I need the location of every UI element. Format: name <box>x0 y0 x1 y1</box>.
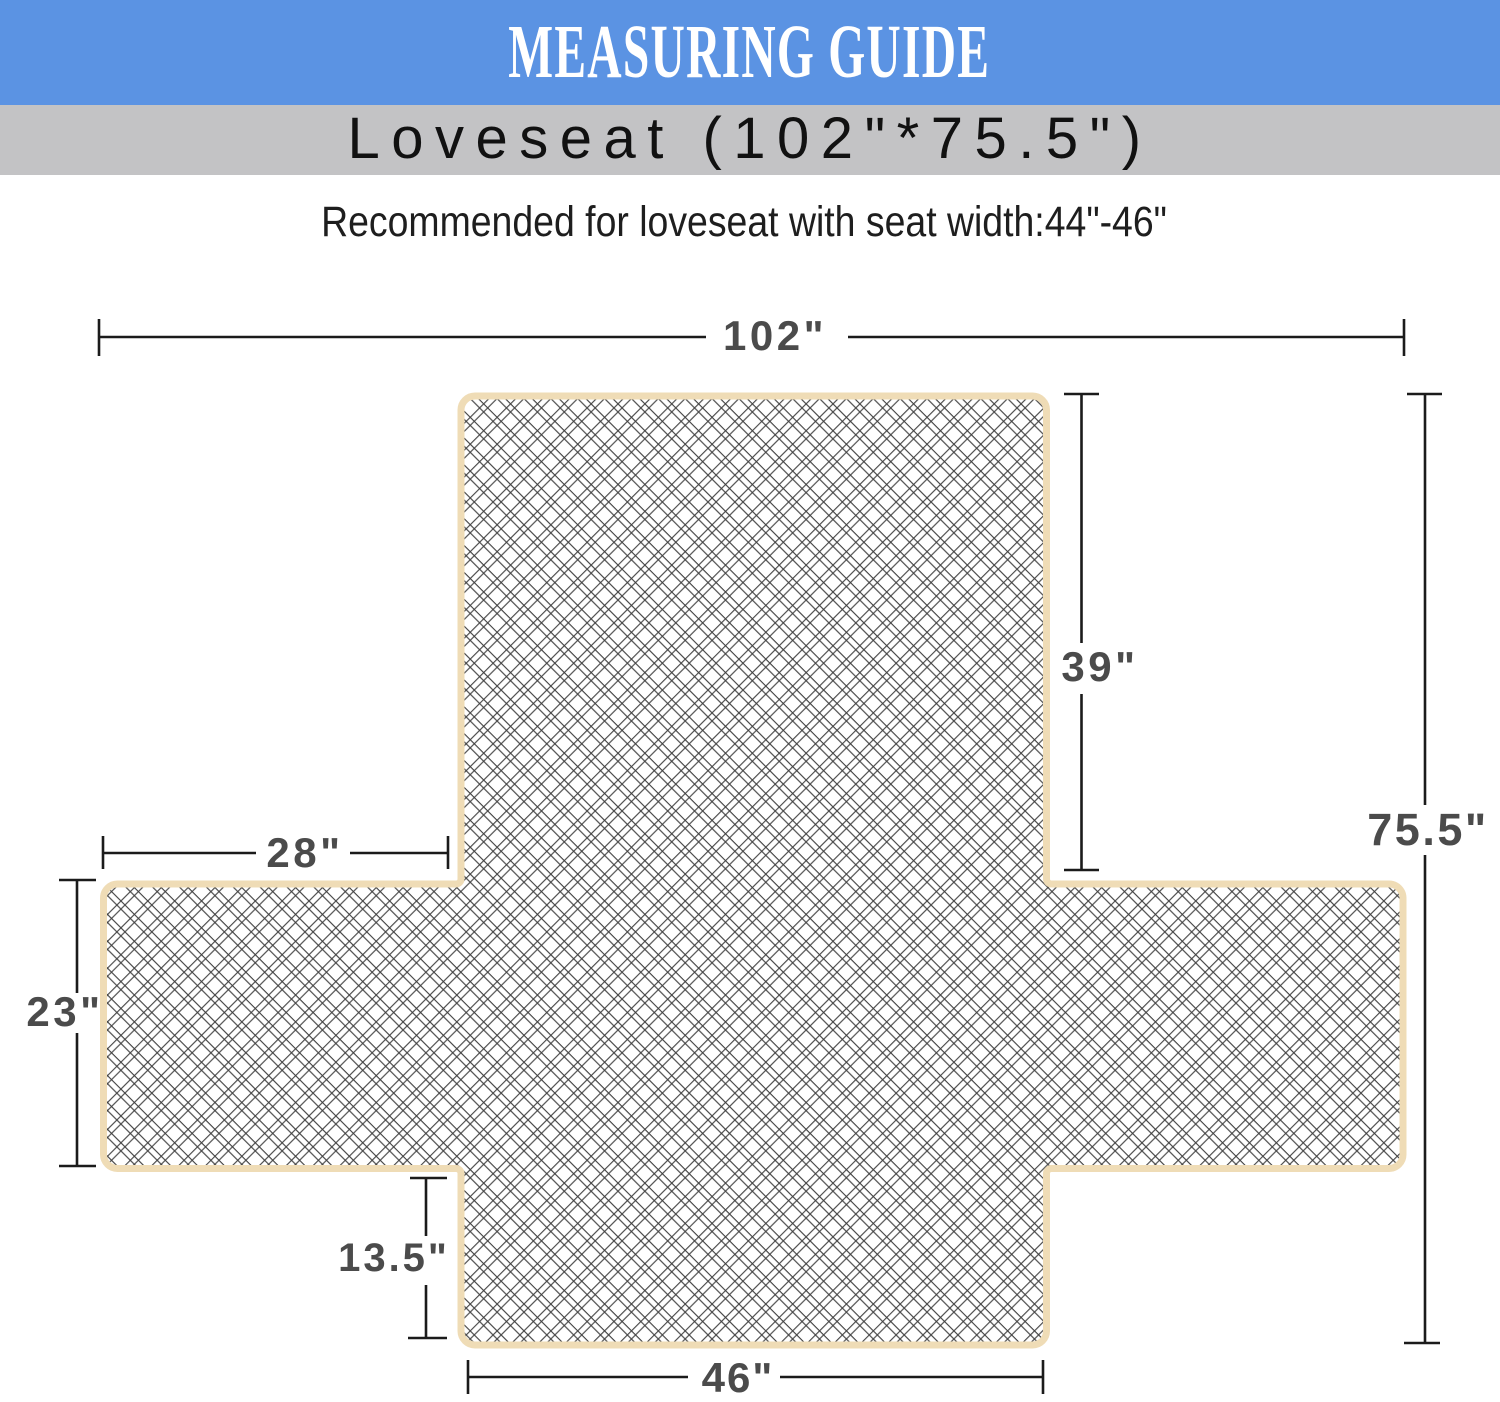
svg-text:39": 39" <box>1061 643 1138 690</box>
svg-text:75.5": 75.5" <box>1367 804 1488 855</box>
svg-text:46": 46" <box>702 1354 775 1401</box>
svg-text:102": 102" <box>723 312 827 359</box>
svg-text:23": 23" <box>26 988 103 1035</box>
svg-text:28": 28" <box>266 829 343 876</box>
svg-text:13.5": 13.5" <box>338 1236 450 1280</box>
